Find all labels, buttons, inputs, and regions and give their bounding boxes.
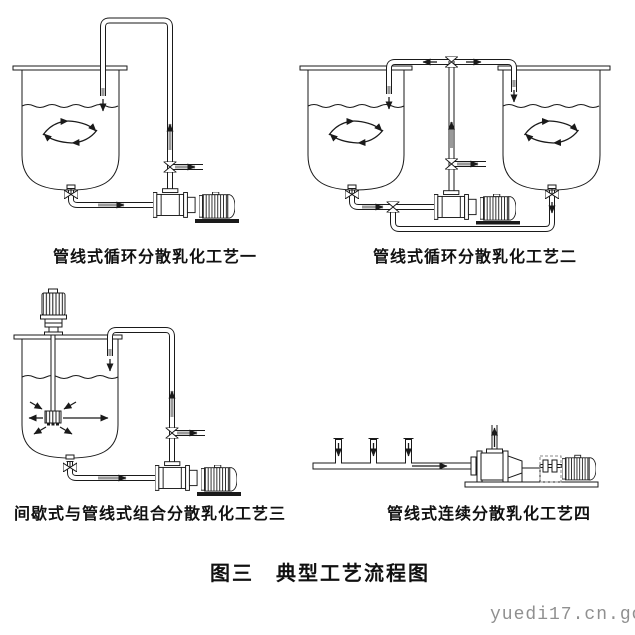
branch-pipe [164, 162, 204, 173]
circulation-arrows-icon [43, 121, 97, 143]
motor-icon [199, 192, 235, 218]
figure-canvas: 管线式循环分散乳化工艺一 管线式循环分散乳化工艺二 间歇式与管线式组合分散乳化工… [0, 0, 635, 635]
outlet-nozzle [66, 455, 74, 459]
coupling [543, 460, 548, 472]
branch-pipe [445, 159, 486, 170]
inlet-flange [471, 457, 476, 475]
batch-mixer [29, 289, 108, 434]
pump-icon [153, 189, 195, 218]
diagram-process-1 [0, 0, 240, 240]
tank-body [22, 339, 118, 458]
diagram-process-2 [290, 0, 635, 240]
caption-process-4: 管线式连续分散乳化工艺四 [364, 500, 614, 524]
skid-base [465, 482, 598, 487]
caption-process-3: 间歇式与管线式组合分散乳化工艺三 [14, 500, 264, 524]
pump-chamber [481, 453, 504, 480]
tank-body [503, 70, 600, 190]
motor-icon [201, 465, 237, 491]
watermark-text: yuedi17.cn.go [490, 605, 635, 625]
feed-inlets [334, 439, 414, 465]
dispersion-arrows-icon [29, 402, 108, 434]
emulsifier-pump-unit [155, 462, 241, 496]
inline-emulsifier-unit [465, 425, 598, 487]
pump-base [195, 219, 239, 223]
top-motor-icon [41, 289, 67, 335]
emulsifier-pump-unit [153, 189, 239, 223]
bearing-block [522, 468, 540, 482]
pump-base [197, 492, 241, 496]
reducer-cone [508, 456, 522, 478]
tank [14, 335, 122, 458]
diagram-process-3 [0, 285, 270, 505]
liquid-level [503, 105, 599, 108]
tank-lid [14, 335, 122, 339]
pump-icon [155, 462, 197, 491]
circulation-loop-pipe [101, 21, 170, 191]
diagram-process-4 [300, 380, 635, 505]
caption-process-1: 管线式循环分散乳化工艺一 [30, 243, 280, 267]
branch-pipe [166, 428, 206, 439]
coupling [552, 460, 557, 472]
tank [13, 66, 127, 190]
circulation-arrows-icon [329, 121, 383, 143]
pump-base [476, 221, 520, 225]
figure-title: 图三 典型工艺流程图 [167, 557, 473, 586]
dip-tube-tip [101, 88, 104, 96]
liquid-level [22, 376, 118, 379]
circulation-arrows-icon [525, 121, 579, 143]
left-tank [300, 66, 412, 190]
outlet-flange [487, 449, 503, 453]
pump-icon [434, 191, 476, 220]
tank-lid [13, 66, 127, 70]
dip-tube-tip [387, 86, 390, 94]
suction-pipe [63, 455, 156, 478]
mixer-head-icon [46, 412, 61, 423]
tank-lid [300, 66, 412, 70]
emulsifier-pump-unit [434, 191, 520, 225]
motor-icon [562, 455, 596, 480]
suction-pipe [64, 185, 154, 205]
dip-tube-tip [512, 80, 515, 87]
pump-riser-pipe [387, 57, 515, 193]
caption-process-2: 管线式循环分散乳化工艺二 [350, 243, 600, 267]
dip-tube-tip [108, 349, 111, 356]
motor-icon [480, 194, 516, 220]
